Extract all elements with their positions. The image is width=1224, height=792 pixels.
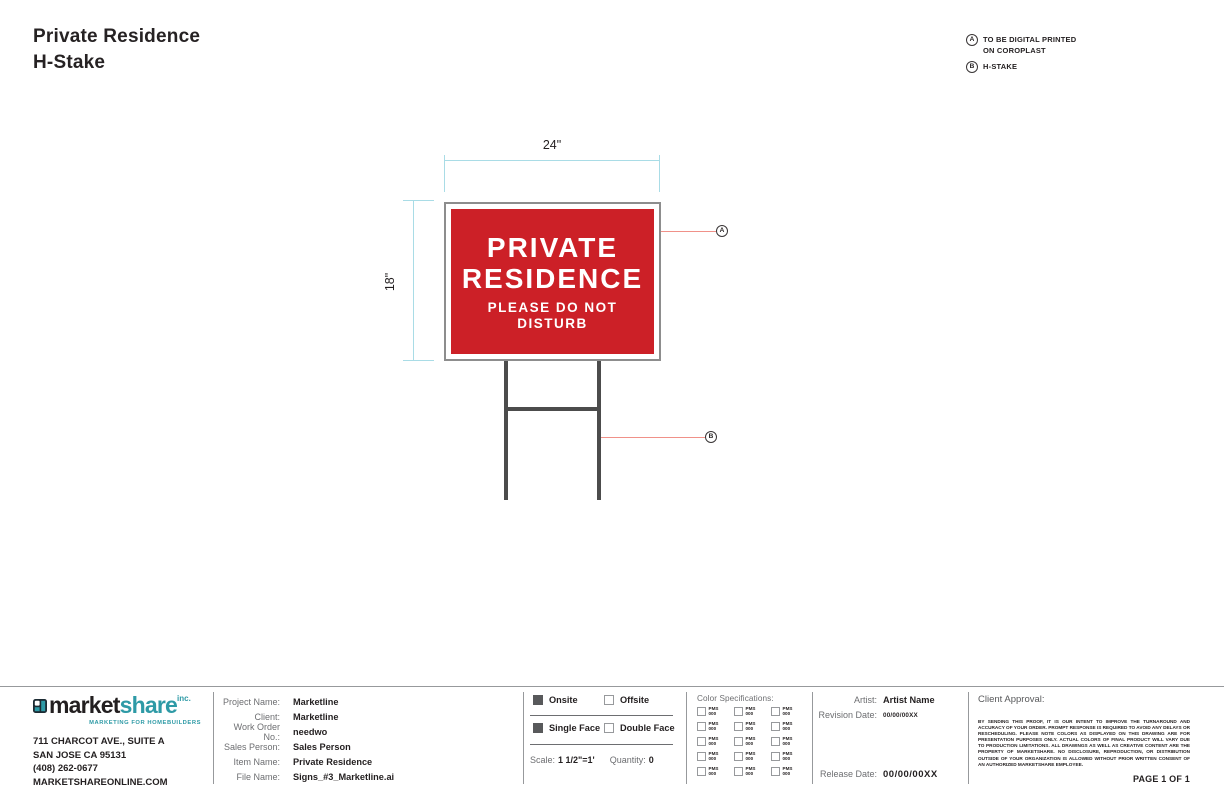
sign-headline-line2: RESIDENCE xyxy=(462,263,643,294)
pms-label-line2: 000 xyxy=(783,711,793,716)
pms-color-spec-cell: PMS 000 xyxy=(771,751,808,766)
color-specs-heading: Color Specifications: xyxy=(697,694,810,703)
pms-checkbox[interactable] xyxy=(771,752,780,761)
work-order-value: needwo xyxy=(293,727,327,737)
release-date-value: 00/00/00XX xyxy=(883,769,938,780)
revision-date-row: Revision Date: 00/00/00XX xyxy=(817,710,963,720)
onsite-checkbox[interactable] xyxy=(533,695,543,705)
pms-checkbox[interactable] xyxy=(697,707,706,716)
h-stake-right-leg xyxy=(597,361,601,500)
legend-item-a: A TO BE DIGITAL PRINTED ON COROPLAST xyxy=(966,34,1076,56)
offsite-label: Offsite xyxy=(620,695,649,705)
legend-marker-a: A xyxy=(966,34,978,46)
item-name-row: Item Name: Private Residence xyxy=(216,754,516,769)
pms-label: PMS 000 xyxy=(783,721,793,731)
pms-label: PMS 000 xyxy=(709,751,719,761)
pms-label-line2: 000 xyxy=(783,726,793,731)
sign-panel: PRIVATE RESIDENCE PLEASE DO NOT DISTURB xyxy=(444,202,661,361)
pms-color-spec-cell: PMS 000 xyxy=(771,721,808,736)
approval-legal-text: BY SENDING THIS PROOF, IT IS OUR INTENT … xyxy=(978,719,1190,768)
file-name-row: File Name: Signs_#3_Marketline.ai xyxy=(216,769,516,784)
release-date-row: Release Date: 00/00/00XX xyxy=(817,769,963,780)
sales-person-value: Sales Person xyxy=(293,742,351,752)
pms-label-line2: 000 xyxy=(746,756,756,761)
callout-b-circle: B xyxy=(705,431,717,443)
callout-b-leader-line xyxy=(601,437,705,438)
pms-color-spec-cell: PMS 000 xyxy=(697,706,734,721)
file-name-label: File Name: xyxy=(216,772,280,782)
offsite-option: Offsite xyxy=(604,695,675,705)
pms-checkbox[interactable] xyxy=(771,707,780,716)
scale-value: 1 1/2"=1' xyxy=(558,755,595,765)
address-website: MARKETSHAREONLINE.COM xyxy=(33,776,205,790)
pms-label-line2: 000 xyxy=(709,711,719,716)
pms-color-spec-cell: PMS 000 xyxy=(734,721,771,736)
address-line1: 711 CHARCOT AVE., SUITE A xyxy=(33,735,205,749)
quantity-label: Quantity: xyxy=(610,755,646,765)
onsite-label: Onsite xyxy=(549,695,578,705)
width-dimension-tick-left xyxy=(444,155,445,192)
width-dimension-tick-right xyxy=(659,155,660,192)
pms-label: PMS 000 xyxy=(746,751,756,761)
pms-checkbox[interactable] xyxy=(734,737,743,746)
height-dimension-label: 18" xyxy=(383,267,403,297)
project-name-row: Project Name: Marketline xyxy=(216,694,516,709)
double-face-label: Double Face xyxy=(620,723,675,733)
pms-checkbox[interactable] xyxy=(697,752,706,761)
logo-inc-suffix: inc. xyxy=(177,694,191,703)
footer-divider-3 xyxy=(686,692,687,784)
pms-label-line2: 000 xyxy=(746,771,756,776)
site-options-row: Onsite Offsite xyxy=(533,695,675,705)
footer-divider-1 xyxy=(213,692,214,784)
h-stake-crossbar xyxy=(504,407,601,411)
pms-color-spec-cell: PMS 000 xyxy=(697,766,734,781)
legend-label-a: TO BE DIGITAL PRINTED ON COROPLAST xyxy=(983,34,1076,56)
double-face-option: Double Face xyxy=(604,723,675,733)
pms-checkbox[interactable] xyxy=(734,752,743,761)
company-section: marketshare inc. MARKETING FOR HOMEBUILD… xyxy=(33,692,205,789)
item-name-value: Private Residence xyxy=(293,757,372,767)
client-approval-section: Client Approval: BY SENDING THIS PROOF, … xyxy=(978,692,1191,786)
pms-label-line2: 000 xyxy=(783,756,793,761)
pms-label: PMS 000 xyxy=(746,766,756,776)
logo-word-market: market xyxy=(49,692,120,718)
company-logo: marketshare inc. xyxy=(33,692,205,719)
pms-color-spec-cell: PMS 000 xyxy=(734,766,771,781)
pms-grid: PMS 000 PMS 000 PMS 000 PMS 000 xyxy=(697,706,810,781)
single-face-checkbox[interactable] xyxy=(533,723,543,733)
face-options-row: Single Face Double Face xyxy=(533,723,675,733)
scale-label: Scale: xyxy=(530,755,555,765)
pms-label-line2: 000 xyxy=(709,726,719,731)
page-title-line1: Private Residence xyxy=(33,24,200,50)
pms-label: PMS 000 xyxy=(709,736,719,746)
pms-color-spec-cell: PMS 000 xyxy=(734,751,771,766)
pms-checkbox[interactable] xyxy=(771,722,780,731)
legend-item-b: B H-STAKE xyxy=(966,61,1017,73)
work-order-label: Work Order No.: xyxy=(216,722,280,742)
project-info-section: Project Name: Marketline Client: Marketl… xyxy=(216,694,516,784)
logo-wordmark: marketshare xyxy=(49,692,177,719)
pms-label: PMS 000 xyxy=(746,736,756,746)
sales-person-row: Sales Person: Sales Person xyxy=(216,739,516,754)
height-dimension-line xyxy=(413,200,414,361)
pms-label: PMS 000 xyxy=(783,766,793,776)
callout-a-circle: A xyxy=(716,225,728,237)
pms-checkbox[interactable] xyxy=(734,722,743,731)
options-divider-1 xyxy=(530,715,673,716)
sales-person-label: Sales Person: xyxy=(216,742,280,752)
single-face-label: Single Face xyxy=(549,723,600,733)
pms-label: PMS 000 xyxy=(783,706,793,716)
width-dimension-label: 24" xyxy=(444,138,660,152)
footer-top-rule xyxy=(0,686,1224,687)
width-dimension-line xyxy=(444,160,660,161)
pms-color-spec-cell: PMS 000 xyxy=(771,706,808,721)
pms-color-spec-cell: PMS 000 xyxy=(771,766,808,781)
pms-label: PMS 000 xyxy=(746,721,756,731)
pms-label: PMS 000 xyxy=(783,751,793,761)
sign-subline-line1: PLEASE DO NOT xyxy=(488,300,618,316)
pms-label-line2: 000 xyxy=(746,741,756,746)
work-order-row: Work Order No.: needwo xyxy=(216,724,516,739)
sign-face: PRIVATE RESIDENCE PLEASE DO NOT DISTURB xyxy=(451,209,654,354)
client-approval-heading: Client Approval: xyxy=(978,694,1191,705)
artist-value: Artist Name xyxy=(883,695,935,705)
sign-headline-line1: PRIVATE xyxy=(487,232,618,263)
pms-label: PMS 000 xyxy=(746,706,756,716)
pms-color-spec-cell: PMS 000 xyxy=(697,751,734,766)
pms-label-line2: 000 xyxy=(783,771,793,776)
pms-checkbox[interactable] xyxy=(771,767,780,776)
release-date-label: Release Date: xyxy=(817,769,877,780)
pms-checkbox[interactable] xyxy=(697,737,706,746)
pms-label-line2: 000 xyxy=(746,711,756,716)
pms-checkbox[interactable] xyxy=(697,722,706,731)
footer-divider-4 xyxy=(812,692,813,784)
pms-checkbox[interactable] xyxy=(771,737,780,746)
pms-label-line2: 000 xyxy=(783,741,793,746)
item-name-label: Item Name: xyxy=(216,757,280,767)
pms-label-line2: 000 xyxy=(709,771,719,776)
address-line2: SAN JOSE CA 95131 xyxy=(33,749,205,763)
pms-label: PMS 000 xyxy=(783,736,793,746)
legend-label-a-line2: ON COROPLAST xyxy=(983,46,1076,57)
pms-color-spec-cell: PMS 000 xyxy=(734,736,771,751)
revision-date-label: Revision Date: xyxy=(817,710,877,720)
marketshare-logo-icon xyxy=(33,699,47,713)
logo-word-share: share xyxy=(120,692,177,718)
client-value: Marketline xyxy=(293,712,338,722)
pms-label-line2: 000 xyxy=(709,756,719,761)
client-label: Client: xyxy=(216,712,280,722)
artist-row: Artist: Artist Name xyxy=(817,695,963,705)
pms-label-line2: 000 xyxy=(709,741,719,746)
artist-label: Artist: xyxy=(817,695,877,705)
pms-checkbox[interactable] xyxy=(734,707,743,716)
revision-date-value: 00/00/00XX xyxy=(883,710,918,720)
height-dimension-tick-bottom xyxy=(403,360,434,361)
offsite-checkbox[interactable] xyxy=(604,695,614,705)
options-section: Onsite Offsite Single Face Double Face S… xyxy=(530,692,676,784)
pms-checkbox[interactable] xyxy=(697,767,706,776)
sign-subline-line2: DISTURB xyxy=(517,316,588,332)
pms-color-spec-cell: PMS 000 xyxy=(697,721,734,736)
company-address: 711 CHARCOT AVE., SUITE A SAN JOSE CA 95… xyxy=(33,735,205,789)
page-number: PAGE 1 OF 1 xyxy=(1133,774,1190,784)
callout-a-leader-line xyxy=(661,231,716,232)
legend-label-a-line1: TO BE DIGITAL PRINTED xyxy=(983,35,1076,46)
height-dimension-tick-top xyxy=(403,200,434,201)
pms-label: PMS 000 xyxy=(709,721,719,731)
onsite-option: Onsite xyxy=(533,695,604,705)
pms-label: PMS 000 xyxy=(709,706,719,716)
file-name-value: Signs_#3_Marketline.ai xyxy=(293,772,394,782)
pms-label: PMS 000 xyxy=(709,766,719,776)
page-title-line2: H-Stake xyxy=(33,50,200,76)
footer-divider-2 xyxy=(523,692,524,784)
options-divider-2 xyxy=(530,744,673,745)
logo-tagline: MARKETING FOR HOMEBUILDERS xyxy=(33,720,205,726)
proof-sheet-page: Private Residence H-Stake A TO BE DIGITA… xyxy=(0,0,1224,792)
project-name-label: Project Name: xyxy=(216,697,280,707)
single-face-option: Single Face xyxy=(533,723,604,733)
page-title: Private Residence H-Stake xyxy=(33,24,200,76)
double-face-checkbox[interactable] xyxy=(604,723,614,733)
project-name-value: Marketline xyxy=(293,697,338,707)
legend-label-b: H-STAKE xyxy=(983,61,1017,73)
h-stake-left-leg xyxy=(504,361,508,500)
quantity-value: 0 xyxy=(649,755,654,765)
pms-color-spec-cell: PMS 000 xyxy=(734,706,771,721)
pms-color-spec-cell: PMS 000 xyxy=(771,736,808,751)
scale-quantity-row: Scale: 1 1/2"=1' Quantity: 0 xyxy=(530,755,654,765)
address-phone: (408) 262-0677 xyxy=(33,762,205,776)
legend-marker-b: B xyxy=(966,61,978,73)
pms-color-spec-cell: PMS 000 xyxy=(697,736,734,751)
artist-section: Artist: Artist Name Revision Date: 00/00… xyxy=(817,692,963,784)
color-specs-section: Color Specifications: PMS 000 PMS 000 PM… xyxy=(697,692,810,781)
pms-label-line2: 000 xyxy=(746,726,756,731)
footer-divider-5 xyxy=(968,692,969,784)
pms-checkbox[interactable] xyxy=(734,767,743,776)
